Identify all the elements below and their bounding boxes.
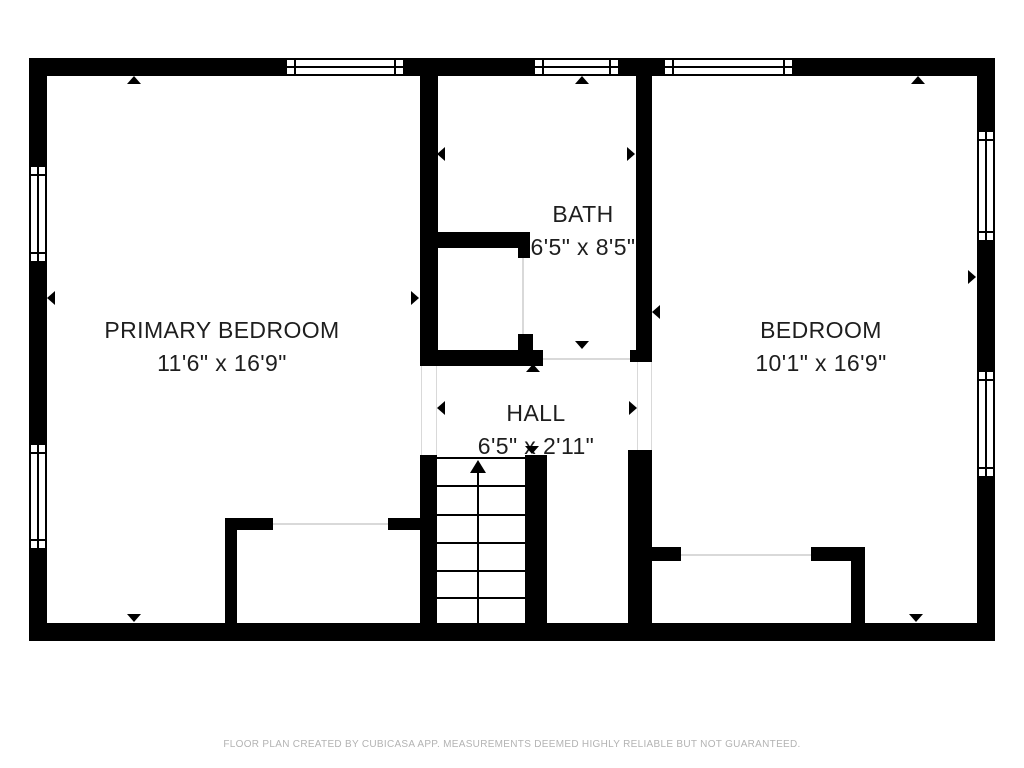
room-label-bath: BATH 6'5" x 8'5" (531, 198, 636, 264)
dimension-arrow-up-icon (575, 76, 589, 84)
room-label-primary-bedroom: PRIMARY BEDROOM 11'6" x 16'9" (104, 314, 339, 380)
dimension-arrow-left-icon (437, 401, 445, 415)
stair-tread (437, 514, 525, 516)
door-opening-line (543, 358, 630, 360)
room-dimensions: 6'5" x 8'5" (531, 231, 636, 264)
wall-bath-closet-jamb-bottom (518, 334, 533, 350)
window (663, 58, 794, 76)
room-name: HALL (478, 397, 594, 430)
wall-bath-right (636, 58, 652, 350)
window (29, 443, 47, 550)
room-dimensions: 10'1" x 16'9" (755, 347, 886, 380)
wall-bath-left (420, 58, 438, 366)
window (977, 370, 995, 478)
wall-br-closet-top-left (652, 547, 681, 561)
staircase (437, 457, 525, 623)
dimension-arrow-left-icon (652, 305, 660, 319)
wall-pb-closet-top-right (388, 518, 420, 530)
door-opening-line (637, 362, 638, 450)
stair-tread (437, 597, 525, 599)
wall-stair-right (525, 455, 547, 623)
stair-tread (437, 485, 525, 487)
door-opening-line (273, 523, 388, 525)
room-label-bedroom: BEDROOM 10'1" x 16'9" (755, 314, 886, 380)
room-name: PRIMARY BEDROOM (104, 314, 339, 347)
dimension-arrow-right-icon (968, 270, 976, 284)
room-name: BATH (531, 198, 636, 231)
dimension-arrow-down-icon (909, 614, 923, 622)
door-opening-line (421, 366, 422, 455)
wall-stair-left (420, 455, 437, 623)
wall-outer-top (29, 58, 995, 76)
wall-bath-closet-jamb-top (518, 248, 530, 258)
door-opening-line (522, 258, 524, 334)
dimension-arrow-down-icon (575, 341, 589, 349)
window (285, 58, 405, 76)
wall-pb-closet-top-left (225, 518, 273, 530)
dimension-arrow-right-icon (411, 291, 419, 305)
dimension-arrow-up-icon (526, 364, 540, 372)
wall-br-closet-right (851, 547, 865, 623)
dimension-arrow-left-icon (437, 147, 445, 161)
stair-tread (437, 570, 525, 572)
dimension-arrow-down-icon (525, 446, 539, 454)
dimension-arrow-up-icon (911, 76, 925, 84)
stair-tread (437, 542, 525, 544)
wall-bedroom-left-lower (628, 450, 652, 623)
room-dimensions: 11'6" x 16'9" (104, 347, 339, 380)
window (29, 165, 47, 263)
wall-bath-right-foot (630, 350, 652, 362)
wall-pb-closet-left (225, 518, 237, 623)
window (977, 130, 995, 242)
door-opening-line (681, 554, 811, 556)
floor-plan: PRIMARY BEDROOM 11'6" x 16'9" BATH 6'5" … (0, 0, 1024, 768)
stair-direction-line (477, 471, 479, 623)
wall-outer-bottom (29, 623, 995, 641)
wall-outer-left (29, 58, 47, 641)
wall-bath-closet-top (420, 232, 530, 248)
wall-bath-bottom (420, 350, 543, 366)
door-opening-line (651, 362, 652, 450)
dimension-arrow-left-icon (47, 291, 55, 305)
dimension-arrow-right-icon (629, 401, 637, 415)
dimension-arrow-down-icon (127, 614, 141, 622)
window (533, 58, 620, 76)
room-name: BEDROOM (755, 314, 886, 347)
dimension-arrow-up-icon (127, 76, 141, 84)
footer-disclaimer: FLOOR PLAN CREATED BY CUBICASA APP. MEAS… (223, 739, 800, 750)
dimension-arrow-right-icon (627, 147, 635, 161)
